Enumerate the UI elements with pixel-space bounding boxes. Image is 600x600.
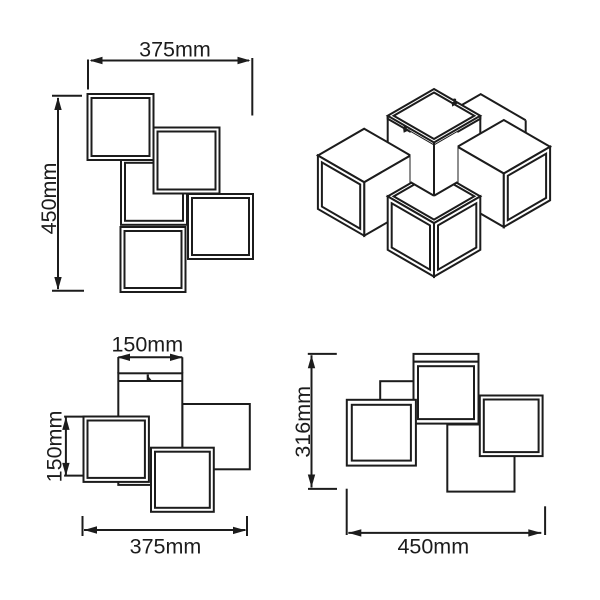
svg-text:450mm: 450mm — [37, 163, 61, 235]
svg-text:150mm: 150mm — [43, 411, 67, 483]
svg-text:316mm: 316mm — [291, 386, 315, 458]
svg-text:150mm: 150mm — [111, 332, 183, 356]
svg-text:450mm: 450mm — [397, 535, 469, 559]
svg-text:375mm: 375mm — [130, 535, 202, 559]
svg-text:375mm: 375mm — [139, 38, 211, 62]
